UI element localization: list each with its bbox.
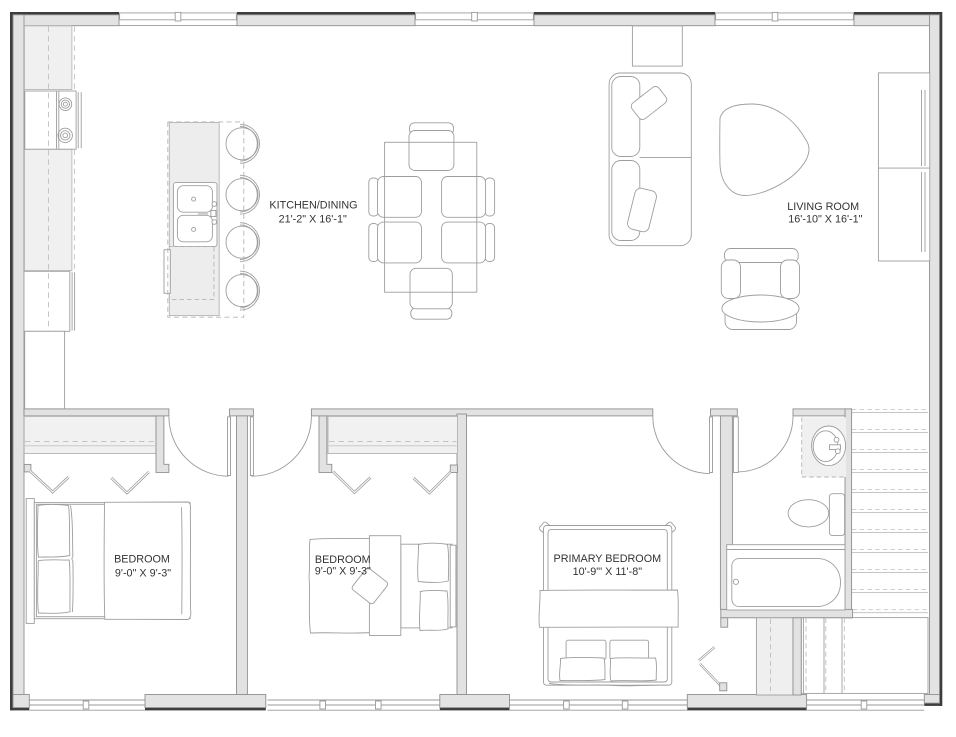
svg-text:21'-2" X 16'-1": 21'-2" X 16'-1"	[279, 213, 347, 225]
svg-text:9'-0" X 9'-3": 9'-0" X 9'-3"	[115, 567, 171, 579]
svg-text:BEDROOM: BEDROOM	[315, 554, 371, 566]
svg-text:16'-10" X 16'-1": 16'-10" X 16'-1"	[788, 213, 862, 225]
svg-text:9'-0" X 9'-3": 9'-0" X 9'-3"	[315, 566, 371, 578]
svg-text:PRIMARY BEDROOM: PRIMARY BEDROOM	[554, 553, 662, 565]
svg-text:KITCHEN/DINING: KITCHEN/DINING	[269, 200, 357, 212]
svg-text:LIVING ROOM: LIVING ROOM	[787, 201, 859, 213]
svg-text:10'-9"' X 11'-8": 10'-9"' X 11'-8"	[573, 566, 643, 578]
svg-text:BEDROOM: BEDROOM	[114, 554, 170, 566]
